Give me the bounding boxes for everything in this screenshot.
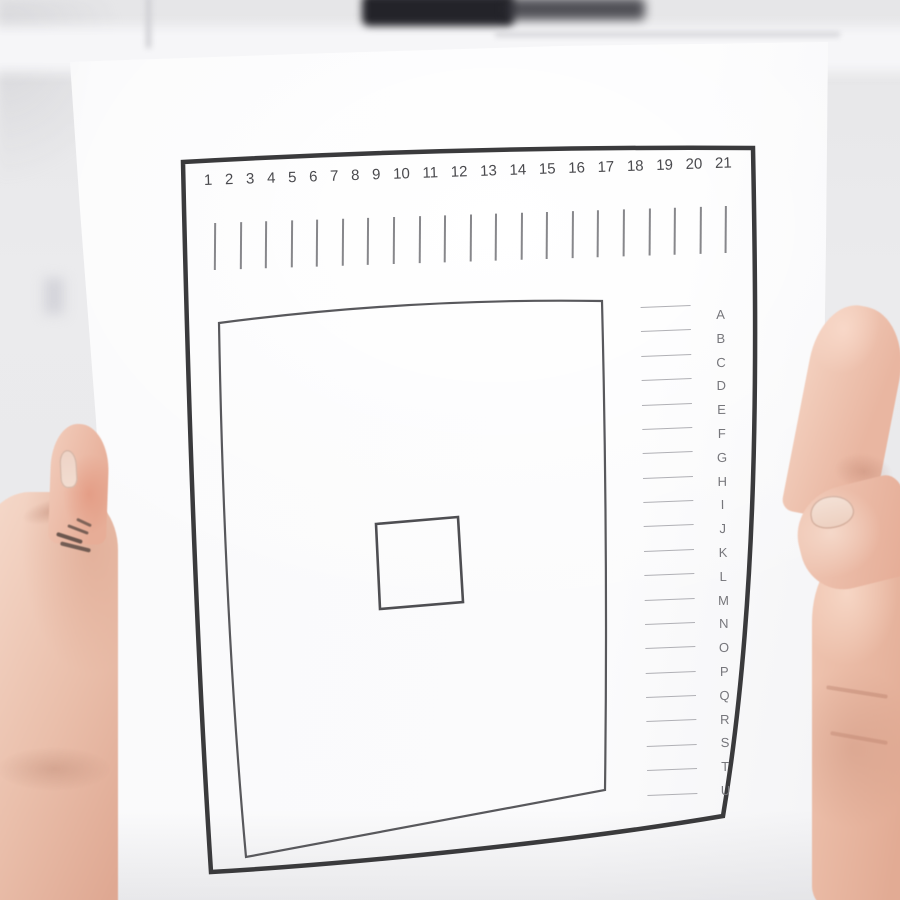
letter-label: B [716, 332, 725, 345]
ruler-tick [444, 215, 446, 262]
ruler-number: 9 [372, 164, 381, 186]
letter-label: T [721, 760, 729, 773]
ruler-tick [342, 219, 344, 266]
ink-mark [56, 532, 83, 544]
letter-cut-line [646, 671, 696, 674]
letter-label: Q [719, 689, 729, 702]
whiteboard-frame-line [146, 0, 151, 48]
inner-rectangle [219, 301, 606, 857]
letter-cut-line [645, 597, 695, 600]
ruler-tick [623, 209, 625, 256]
ruler-tick [469, 214, 471, 261]
right-palm [812, 550, 900, 900]
ruler-number: 4 [267, 168, 276, 190]
letter-cut-line [642, 427, 692, 430]
ruler-tick [393, 217, 395, 264]
letter-cut-line [645, 646, 695, 649]
ruler-tick [699, 207, 701, 254]
ruler-tick [572, 211, 574, 258]
ruler-tick [265, 221, 267, 268]
calibration-sheet-paper: 123456789101112131415161718192021 ABCDEF… [0, 0, 900, 900]
right-wrist-crease [830, 731, 888, 745]
letter-cut-line [641, 354, 691, 357]
marker-blur [362, 0, 514, 26]
letter-cut-line [641, 305, 691, 308]
letter-label: D [716, 379, 726, 392]
ruler-number: 21 [715, 153, 732, 176]
ruler-tick [597, 210, 599, 257]
ruler-tick [214, 223, 216, 270]
ruler-number: 12 [450, 161, 467, 184]
letter-label: H [717, 475, 727, 488]
letter-label: U [721, 784, 731, 797]
ruler-number: 17 [597, 156, 614, 179]
letter-cut-line [644, 573, 694, 576]
letter-cut-line [642, 403, 692, 406]
ruler-tick [546, 212, 548, 259]
ruler-number: 20 [685, 153, 702, 176]
ruler-number: 1 [204, 170, 213, 192]
letter-label: J [719, 522, 726, 535]
ruler-tick [520, 213, 522, 260]
letter-cut-line [647, 768, 697, 771]
left-thumb-fold-shadow [16, 490, 90, 532]
letter-label: K [719, 546, 728, 559]
letter-label: M [718, 594, 729, 607]
ink-mark [67, 524, 89, 535]
ruler-tick [674, 208, 676, 255]
marker-cap-blur [505, 0, 645, 20]
letter-label: G [717, 451, 727, 464]
whiteboard-tray-line [495, 32, 840, 37]
ruler-number: 18 [627, 155, 644, 178]
letter-cut-line [643, 500, 693, 503]
letter-label: C [716, 356, 726, 369]
ruler-tick [290, 220, 292, 267]
right-wrist-crease [826, 685, 888, 699]
letter-cut-line [643, 476, 693, 479]
ruler-number: 16 [568, 157, 585, 180]
letter-label: N [719, 617, 729, 630]
small-square [376, 517, 463, 609]
ruler-number: 3 [246, 168, 255, 190]
letter-cut-line [646, 719, 696, 722]
letter-label: R [720, 712, 730, 725]
left-thumb-nail [59, 450, 78, 489]
left-palm [0, 492, 118, 900]
ruler-tick [648, 209, 650, 256]
letter-label: O [719, 641, 729, 654]
letter-label: F [718, 427, 726, 440]
ruler-tick [316, 220, 318, 267]
ruler-tick [495, 214, 497, 261]
ruler-number: 6 [309, 166, 318, 188]
letter-cut-line [646, 695, 696, 698]
letter-cut-line [644, 524, 694, 527]
ruler-number: 13 [480, 160, 497, 183]
ruler-number: 11 [422, 162, 438, 185]
letter-cut-line [641, 329, 691, 332]
ruler-number: 7 [330, 166, 339, 188]
photo-scene: 123456789101112131415161718192021 ABCDEF… [0, 0, 900, 900]
letter-label: A [716, 308, 725, 321]
ink-mark [76, 518, 92, 527]
ruler-number: 15 [538, 158, 555, 181]
ruler-tick [239, 222, 241, 269]
letter-label: S [721, 736, 730, 749]
letter-label: L [720, 570, 727, 583]
letter-cut-line [644, 549, 694, 552]
right-knuckle-shadow [832, 448, 900, 497]
letter-cut-line [645, 622, 695, 625]
ruler-number: 2 [225, 169, 234, 191]
ruler-number: 14 [509, 159, 526, 182]
background-smudge [44, 278, 64, 314]
letter-cut-line [647, 744, 697, 747]
printed-calibration-marks [0, 0, 900, 900]
letter-cut-line [642, 378, 692, 381]
letter-label: E [717, 403, 726, 416]
letter-label: I [721, 498, 725, 511]
ruler-tick [367, 218, 369, 265]
ruler-tick [418, 216, 420, 263]
letter-cut-lines-column [641, 306, 698, 796]
ink-mark [60, 541, 91, 552]
ruler-number: 8 [351, 165, 360, 187]
ruler-number: 19 [656, 154, 673, 177]
ruler-number: 10 [393, 163, 410, 186]
letter-cut-line [643, 451, 693, 454]
left-wrist-crease [0, 733, 120, 805]
letter-label: P [720, 665, 729, 678]
ruler-number: 5 [288, 167, 297, 189]
